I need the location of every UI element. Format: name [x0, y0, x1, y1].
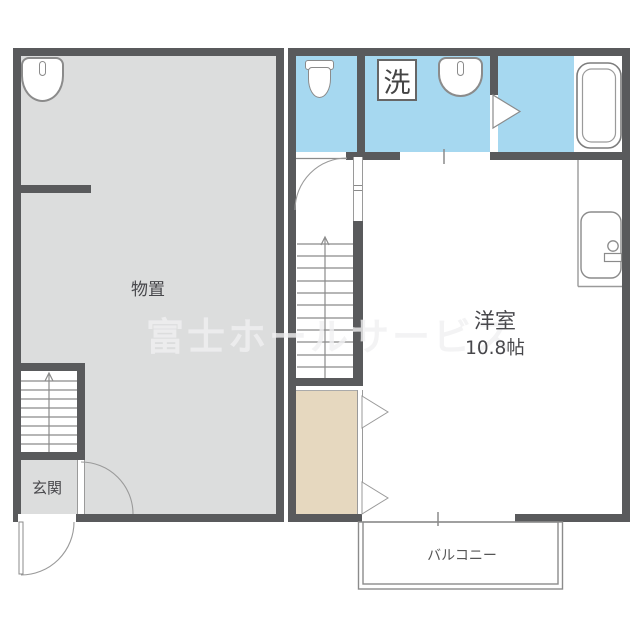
entrance-label: 玄関 [21, 477, 73, 498]
faucet-icon [39, 61, 46, 76]
washroom-door-opening [400, 152, 490, 160]
stairs-wall-top [13, 363, 85, 371]
western-room-size: 10.8帖 [430, 334, 560, 360]
stairs-wall-bottom [13, 452, 85, 460]
bath-doorway [490, 95, 498, 152]
doorway-tick [354, 185, 362, 191]
washing-machine-label: 洗 [384, 61, 411, 100]
balcony-label: バルコニー [398, 545, 526, 565]
western-room-label: 洋室 [430, 305, 560, 335]
toilet-door-opening [296, 152, 346, 160]
stair-hall-doorway [353, 157, 363, 221]
stairs-wall-right [77, 363, 85, 460]
wall-stub [13, 185, 91, 193]
toilet-washroom-wall [357, 56, 365, 152]
washroom-bath-wall [490, 56, 498, 95]
closet-floor [296, 390, 357, 514]
bathtub-zone [574, 56, 622, 152]
entrance-inner-doorway [77, 460, 85, 514]
washing-machine-box: 洗 [377, 59, 417, 101]
stairs-floor [21, 371, 77, 452]
closet-door-line [357, 390, 363, 514]
entrance-door-opening [18, 514, 76, 522]
faucet-icon [457, 61, 464, 76]
stairs-right-wall [353, 221, 363, 386]
stairs-bottom-wall [288, 378, 363, 386]
door-swing-arc [21, 522, 74, 575]
balcony-window-opening [362, 514, 515, 522]
floor-plan-canvas: 洗 [0, 0, 640, 640]
storage-room-label: 物置 [103, 275, 193, 300]
entrance-door [19, 522, 74, 575]
door-leaf [19, 522, 23, 574]
